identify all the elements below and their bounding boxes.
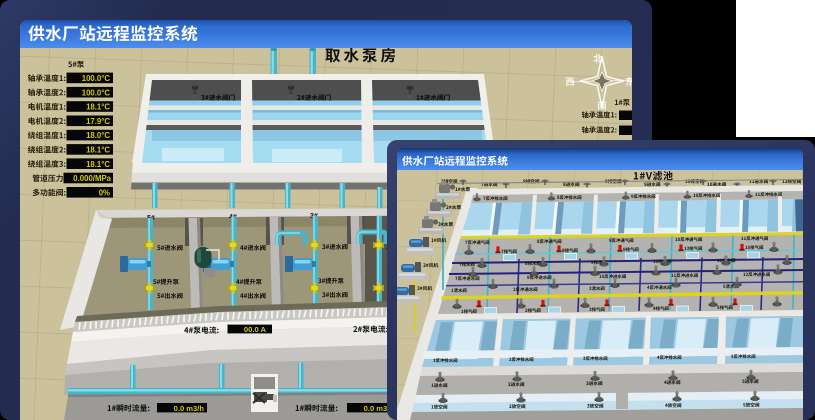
svg-text:100.0°C: 100.0°C	[82, 74, 111, 83]
svg-text:0.0 m3/h: 0.0 m3/h	[174, 404, 205, 413]
svg-text:18.1°C: 18.1°C	[86, 146, 110, 155]
svg-text:18.1°C: 18.1°C	[86, 160, 110, 169]
svg-text:0.000/MPa: 0.000/MPa	[73, 174, 111, 183]
svg-text:18.1°C: 18.1°C	[86, 103, 110, 112]
svg-text:18.0°C: 18.0°C	[86, 131, 110, 140]
svg-text:100.0°C: 100.0°C	[82, 88, 111, 97]
svg-text:17.9°C: 17.9°C	[86, 117, 110, 126]
svg-text:0%: 0%	[99, 188, 110, 197]
svg-text:00.0 A: 00.0 A	[244, 325, 267, 334]
